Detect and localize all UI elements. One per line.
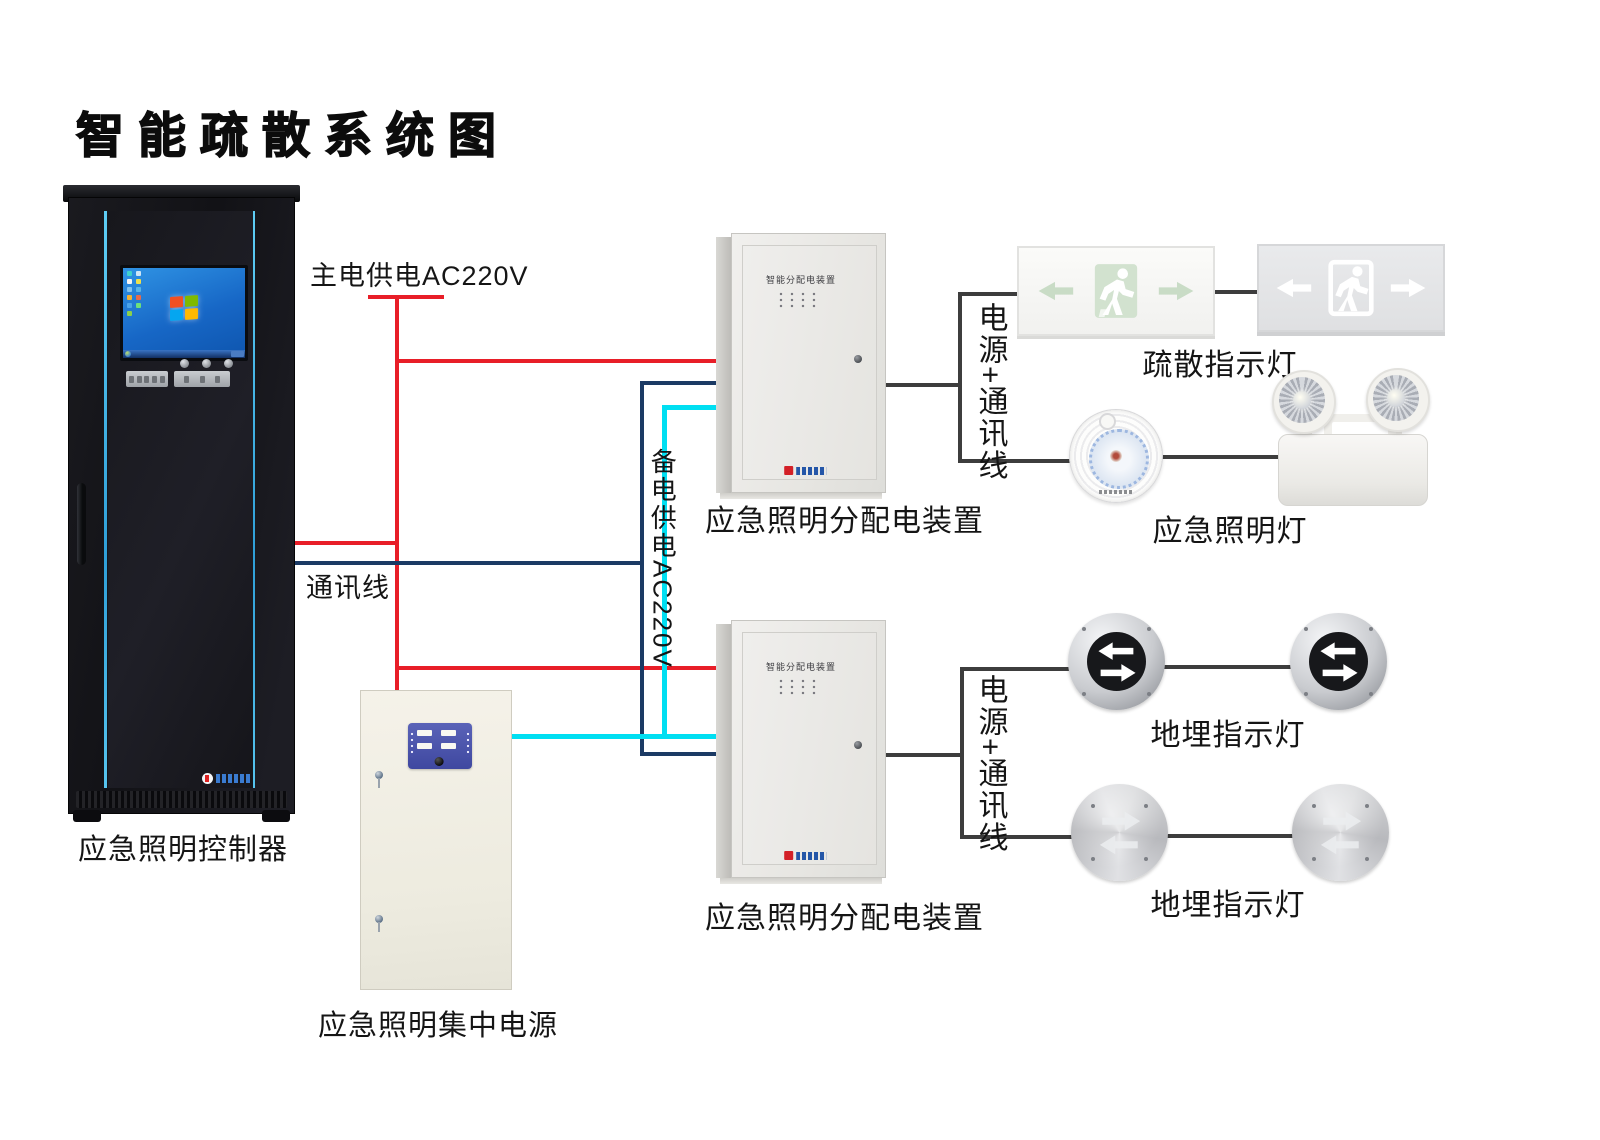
cabinet-foot-left [73,810,101,822]
wire-emergency-light-link [1161,455,1283,459]
taskbar-clock [231,351,244,357]
wire-box1-output [884,383,960,387]
wire-main-power-branch-box1 [395,359,718,363]
evacuation-system-diagram: 智能疏散系统图 主电供电AC220V 通讯线 备电供电AC220V 电源+通讯线… [0,0,1600,1140]
cabinet-brand-logo [202,771,252,786]
keyhole-top [375,771,383,779]
ground-light-top-label: 地埋指示灯 [1128,710,1328,754]
distribution-label-2: 应急照明分配电装置 [705,893,967,937]
box-indicator-lights [775,291,819,309]
panel-knob [435,757,444,766]
distribution-label-1: 应急照明分配电装置 [705,496,967,540]
battery-body [1278,434,1428,506]
indicator-dots [410,731,414,757]
arrow-left-icon [1035,279,1075,303]
center-led [1110,450,1122,462]
exit-sign-2 [1257,244,1445,332]
ground-light-3 [1071,784,1168,881]
start-orb-icon [125,351,131,357]
led-display [441,743,456,749]
test-button [1099,413,1116,430]
etched-double-arrow-icon [1315,807,1367,859]
lamp-head-left [1272,370,1336,434]
cabinet-foot-right [262,810,290,822]
cabinet-button-panel-right [174,371,230,387]
etched-double-arrow-icon [1094,807,1146,859]
arrow-left-icon [1273,276,1313,300]
emergency-light-label: 应急照明灯 [1130,506,1330,550]
wire-bracket2-vertical [960,667,964,839]
desktop-icons-2 [136,271,141,308]
cabinet-round-button-2 [202,359,211,368]
led-display [417,743,432,749]
ground-light-bottom-label: 地埋指示灯 [1128,880,1328,924]
wire-main-power-from-rack [292,541,399,545]
exit-sign-1 [1017,246,1215,336]
keyhole-bottom [375,915,383,923]
reflector [1279,377,1325,423]
arrow-right-icon [1157,279,1197,303]
running-man-icon [1327,259,1375,317]
distribution-box-2: 智能分配电装置 [716,620,886,878]
power-supply-label: 应急照明集中电源 [318,1002,558,1044]
page-title: 智能疏散系统图 [76,96,510,166]
cabinet-screen [120,265,248,361]
running-man-icon [1091,261,1141,321]
wire-exit-sign-link [1209,290,1259,294]
power-supply-control-panel [408,723,472,769]
wire-backup-horizontal [508,734,718,739]
led-display [441,730,456,736]
wire-comm-branch-box2 [640,752,718,756]
main-power-label: 主电供电AC220V [310,254,529,293]
box-panel-title: 智能分配电装置 [716,273,886,286]
wire-ground-light-bottom-link [1166,834,1293,838]
arrow-right-icon [1389,276,1429,300]
twin-head-emergency-light [1272,368,1430,504]
windows-desktop [123,268,245,358]
box-base [720,878,882,884]
cabinet-vent [76,791,287,808]
wire-bracket1-to-exit-sign [958,292,1020,296]
double-arrow-icon [1315,638,1363,686]
wire-main-power-vertical [395,298,399,691]
ground-light-4 [1292,784,1389,881]
distribution-box-1: 智能分配电装置 [716,233,886,493]
wire-backup-branch-box1 [662,405,718,410]
ground-light-2 [1290,613,1387,710]
backup-power-label: 备电供电AC220V [648,448,675,669]
cabinet-handle [77,483,86,565]
power-comm-label-2: 电源+通讯线 [974,674,1006,854]
lamp-head-right [1366,368,1430,432]
brand-text [1099,490,1133,494]
led-display [417,730,432,736]
wire-bracket2-to-ground-light [960,667,1070,671]
windows-logo-icon [170,295,198,321]
cabinet-button-panel-left [126,371,168,387]
ground-light-1 [1068,613,1165,710]
controller-label: 应急照明控制器 [70,826,296,868]
double-arrow-icon [1093,638,1141,686]
wire-box2-output [884,753,962,757]
controller-cabinet [68,185,295,822]
wire-comm-branch-box1 [640,381,718,385]
comm-label: 通讯线 [306,566,390,605]
wire-bracket1-vertical [958,292,962,463]
box-brand-logo [784,466,826,475]
indicator-dots [466,731,470,757]
power-comm-label-1: 电源+通讯线 [974,302,1006,482]
wire-comm-from-rack [292,561,644,565]
desktop-icons [127,271,132,316]
wire-comm-vertical [640,381,644,756]
screen-taskbar [123,350,245,358]
ceiling-emergency-light [1069,409,1163,503]
box-brand-logo [784,851,826,860]
cabinet-accent-left [104,211,107,788]
wire-ground-light-top-link [1163,665,1291,669]
wire-main-power-tick [368,295,444,299]
central-power-supply-cabinet [360,690,512,990]
cabinet-round-button-3 [224,359,233,368]
reflector [1373,375,1419,421]
box-indicator-lights [775,678,819,696]
cabinet-round-button-1 [180,359,189,368]
box-panel-title: 智能分配电装置 [716,660,886,673]
